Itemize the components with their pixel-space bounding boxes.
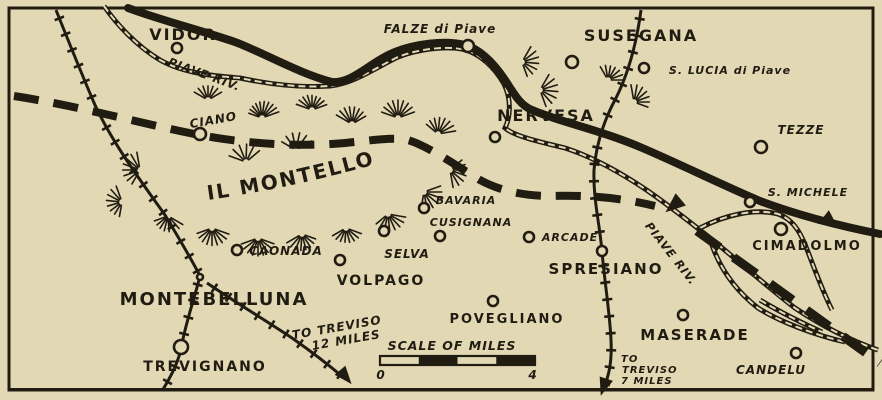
town-marker-cimadolmo: [775, 223, 787, 235]
town-label-bavaria: BAVARIA: [436, 194, 497, 207]
montello-piave-map: VIDORFALZE di PiaveSUSEGANAS. LUCIA di P…: [0, 0, 882, 400]
town-label-s-lucia-di-piave: S. LUCIA di Piave: [669, 64, 791, 77]
town-label-spresiano: SPRESIANO: [549, 260, 664, 278]
town-marker-trevignano: [174, 340, 188, 354]
town-marker-volpago: [335, 255, 345, 265]
to-treviso-s-line3: 7 MILES: [621, 376, 673, 387]
scale-end-label: 4: [527, 368, 537, 382]
town-marker-nervesa: [490, 132, 500, 142]
railroad-tick: [635, 18, 645, 20]
town-marker-caonada: [232, 245, 242, 255]
town-marker-cusignana: [435, 231, 445, 241]
town-label-volpago: VOLPAGO: [337, 273, 426, 289]
town-label-s-michele: S. MICHELE: [768, 186, 848, 199]
town-marker-s-lucia-di-piave: [639, 63, 649, 73]
town-label-cusignana: CUSIGNANA: [430, 216, 513, 229]
town-marker-spresiano: [597, 246, 607, 256]
town-marker-susegana: [566, 56, 578, 68]
town-marker-montebelluna: [197, 274, 203, 280]
to-treviso-s-line1: TO: [621, 354, 638, 365]
town-marker-arcade: [524, 232, 534, 242]
town-label-maserade: MASERADE: [640, 326, 749, 344]
town-marker-vidor: [172, 43, 182, 53]
scale-bar-segment: [419, 356, 458, 365]
railroad-tick: [606, 333, 616, 334]
town-label-nervesa: NERVESA: [497, 106, 595, 125]
railroad-tick: [590, 198, 600, 199]
town-label-selva: SELVA: [384, 247, 430, 261]
town-marker-povegliano: [488, 296, 498, 306]
town-label-vidor: VIDOR: [149, 25, 217, 44]
scale-start-label: 0: [376, 368, 385, 382]
town-label-montebelluna: MONTEBELLUNA: [120, 289, 309, 310]
town-label-falze-di-piave: FALZE di Piave: [384, 22, 497, 36]
hachure-stroke: [345, 231, 346, 242]
map-page: VIDORFALZE di PiaveSUSEGANAS. LUCIA di P…: [0, 0, 882, 400]
to-treviso-s-line2: TREVISO: [622, 365, 678, 376]
town-marker-falze-di-piave: [462, 40, 474, 52]
town-marker-selva: [379, 226, 389, 236]
town-label-arcade: ARCADE: [541, 231, 598, 244]
town-marker-tezze: [755, 141, 767, 153]
town-label-povegliano: POVEGLIANO: [450, 312, 565, 327]
scale-bar-segment: [496, 356, 535, 365]
railroad-tick: [600, 282, 610, 283]
town-marker-bavaria: [419, 203, 429, 213]
town-marker-s-michele: [745, 197, 755, 207]
railroad-tick: [592, 214, 602, 215]
railroad-tick: [605, 366, 615, 368]
railroad-tick: [602, 299, 612, 300]
town-label-caonada: CAONADA: [249, 244, 323, 258]
town-label-cimadolmo: CIMADOLMO: [752, 239, 862, 254]
town-marker-maserade: [678, 310, 688, 320]
railroad-tick: [604, 316, 614, 317]
railroad-tick: [590, 164, 600, 165]
town-label-trevignano: TREVIGNANO: [143, 359, 267, 375]
town-marker-candelu: [791, 348, 801, 358]
map-border-bottom: [9, 388, 873, 392]
hachure-stroke: [246, 144, 247, 158]
town-label-candelu: CANDELU: [736, 363, 806, 377]
town-label-susegana: SUSEGANA: [584, 26, 698, 45]
scale-title: SCALE OF MILES: [388, 338, 517, 353]
town-label-tezze: TEZZE: [778, 123, 825, 137]
